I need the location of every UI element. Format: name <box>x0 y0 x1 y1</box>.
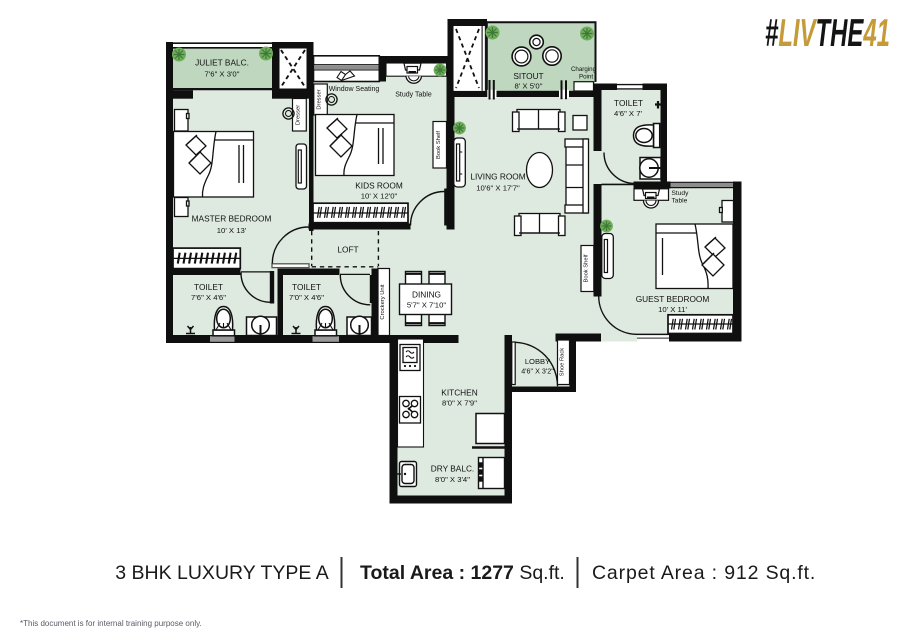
svg-text:3 BHK LUXURY TYPE A: 3 BHK LUXURY TYPE A <box>115 562 329 584</box>
svg-text:Book Shelf: Book Shelf <box>436 131 442 159</box>
svg-text:8'0" X 7'9": 8'0" X 7'9" <box>442 399 477 408</box>
svg-text:Point: Point <box>579 74 593 81</box>
svg-text:Window Seating: Window Seating <box>329 86 380 93</box>
svg-text:Shoe Rack: Shoe Rack <box>560 348 566 376</box>
svg-text:MASTER BEDROOM: MASTER BEDROOM <box>192 214 272 224</box>
svg-text:8'0" X 3'4": 8'0" X 3'4" <box>435 475 470 484</box>
svg-text:Carpet Area : 912 Sq.ft.: Carpet Area : 912 Sq.ft. <box>592 562 816 584</box>
svg-text:Study Table: Study Table <box>395 92 432 99</box>
svg-text:7'0" X 4'6": 7'0" X 4'6" <box>289 293 324 302</box>
svg-text:7'6" X 4'6": 7'6" X 4'6" <box>191 293 226 302</box>
svg-text:Crockery Unit: Crockery Unit <box>380 284 386 319</box>
svg-text:DRY BALC.: DRY BALC. <box>431 464 475 474</box>
svg-text:TOILET: TOILET <box>292 282 321 292</box>
svg-text:JULIET BALC.: JULIET BALC. <box>195 58 249 68</box>
svg-text:TOILET: TOILET <box>614 98 643 108</box>
svg-text:KIDS ROOM: KIDS ROOM <box>355 181 403 191</box>
svg-text:DINING: DINING <box>412 290 441 300</box>
svg-text:Dresser: Dresser <box>317 89 323 109</box>
svg-text:10' X 11': 10' X 11' <box>658 305 687 314</box>
svg-text:*This document is for internal: *This document is for internal training … <box>20 619 202 628</box>
svg-text:8' X 5'0": 8' X 5'0" <box>515 82 543 91</box>
svg-text:10' X 12'0": 10' X 12'0" <box>361 192 398 201</box>
svg-text:Total Area : 1277 Sq.ft.: Total Area : 1277 Sq.ft. <box>360 562 565 584</box>
svg-text:4'6" X 3'2": 4'6" X 3'2" <box>521 367 554 376</box>
svg-text:Table: Table <box>672 198 688 205</box>
svg-text:10' X 13': 10' X 13' <box>217 226 247 235</box>
svg-text:Study: Study <box>672 190 690 197</box>
svg-text:LIVING ROOM: LIVING ROOM <box>470 172 525 182</box>
svg-text:10'6" X 17'7": 10'6" X 17'7" <box>476 184 520 193</box>
svg-text:LOBBY: LOBBY <box>525 357 550 366</box>
svg-text:4'6" X 7': 4'6" X 7' <box>614 109 642 118</box>
svg-text:#LIVTHE41: #LIVTHE41 <box>765 12 890 55</box>
svg-text:LOFT: LOFT <box>337 245 358 255</box>
svg-text:Charging: Charging <box>571 66 597 73</box>
svg-text:7'6" X 3'0": 7'6" X 3'0" <box>205 70 240 79</box>
svg-text:TOILET: TOILET <box>194 282 223 292</box>
svg-text:Dresser: Dresser <box>296 105 302 125</box>
svg-text:GUEST BEDROOM: GUEST BEDROOM <box>636 294 710 304</box>
svg-text:5'7" X 7'10": 5'7" X 7'10" <box>407 301 446 310</box>
svg-text:Book Shelf: Book Shelf <box>583 254 589 282</box>
svg-text:SITOUT: SITOUT <box>513 71 543 81</box>
svg-text:KITCHEN: KITCHEN <box>441 388 477 398</box>
